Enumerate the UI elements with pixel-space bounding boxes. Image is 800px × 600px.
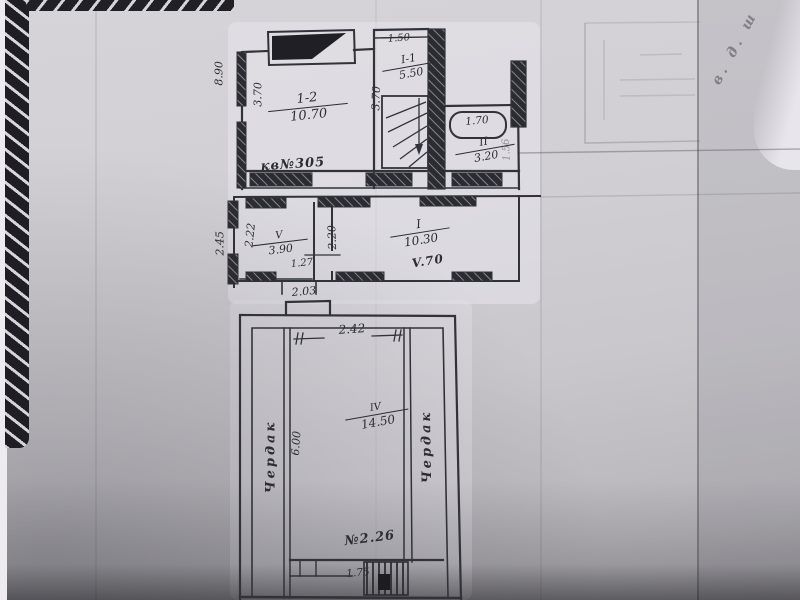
wall-hatch-chimney-right: [511, 61, 526, 127]
floor-plan-linework: [0, 0, 800, 600]
wall-hatch: [228, 254, 238, 284]
wall-hatch: [452, 173, 502, 186]
dim-label-middle-outer-left: 2.45: [215, 213, 228, 273]
dim-label-partition: 2.20: [326, 207, 341, 267]
pencil-lines: [519, 149, 800, 197]
dim-label-outer-left: 8.90: [214, 43, 227, 103]
attic-label-left: Чердак: [265, 406, 280, 506]
scanned-floorplan-photo: 8.90 3.70 1-2 10.70 кв№305 1.50 I-1 5.50…: [0, 0, 800, 600]
wall-hatch: [237, 52, 246, 106]
wall-hatch: [366, 173, 412, 186]
chimney-icon: [268, 30, 355, 65]
wall-hatch: [246, 272, 276, 281]
wall-hatch: [420, 196, 476, 206]
faint-background-drawing: [585, 22, 700, 143]
wall-hatch: [228, 201, 238, 228]
wall-hatch: [452, 272, 492, 281]
dim-label-room12-left: 3.70: [253, 64, 266, 124]
wall-hatch: [336, 272, 384, 281]
dim-label-roomI1-left: 3.70: [370, 68, 385, 128]
staircase-icon: [382, 96, 428, 168]
wall-hatch: [318, 197, 370, 207]
wall-hatch: [237, 122, 246, 188]
attic-label-right: Чердак: [420, 396, 437, 496]
